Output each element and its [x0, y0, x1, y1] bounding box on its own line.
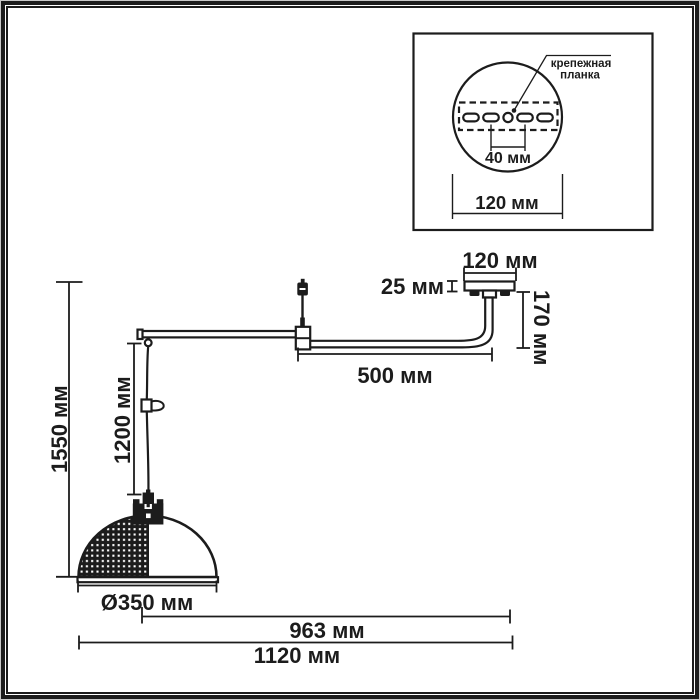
center-hole — [503, 113, 512, 122]
canopy-height-label: 25 мм — [381, 274, 444, 299]
detail-inset: крепежная планка 40 мм 120 мм — [414, 34, 653, 231]
mounting-plate-label-line1: крепежная — [551, 58, 612, 70]
arm-length-label: 500 мм — [357, 363, 432, 388]
shade-rim — [78, 577, 219, 582]
dimension-arm-length: 500 мм — [298, 348, 492, 389]
upper-arm-end-cap — [138, 330, 143, 339]
cord-connector — [143, 493, 154, 505]
dimension-stem-height: 170 мм — [517, 290, 555, 365]
hole-spacing-label: 40 мм — [485, 150, 531, 167]
dimension-suspension-length: 1200 мм — [110, 344, 142, 495]
dimension-canopy-height: 25 мм — [381, 274, 458, 299]
holder-notch-pin — [147, 504, 150, 507]
overall-height-label: 1550 мм — [47, 385, 72, 473]
dimension-shade-diameter: Ø350 мм — [78, 581, 217, 616]
reach-center-label: 963 мм — [289, 618, 364, 643]
suspension-cord-upper — [147, 346, 148, 399]
holder-ear-right — [157, 499, 164, 504]
ceiling-canopy — [465, 282, 515, 291]
holder-ear-left — [133, 499, 140, 504]
plate-width-label: 120 мм — [475, 192, 538, 213]
technical-drawing: крепежная планка 40 мм 120 мм — [0, 0, 700, 700]
lamp-dimension-diagram: крепежная планка 40 мм 120 мм — [0, 0, 700, 700]
cord-clip-loop — [151, 401, 163, 410]
dimension-canopy-width: 120 мм — [462, 248, 537, 281]
upper-arm — [141, 331, 296, 337]
stem-height-label: 170 мм — [529, 290, 554, 365]
slot-hole — [483, 114, 499, 122]
slot-hole — [537, 114, 553, 122]
canopy-screw-right — [500, 291, 510, 297]
mounting-plate-label-line2: планка — [560, 70, 600, 82]
dimension-overall-height: 1550 мм — [47, 282, 83, 577]
canopy-width-label: 120 мм — [462, 248, 537, 273]
holder-window — [146, 514, 151, 519]
plug-slit — [300, 288, 306, 290]
cord-clip — [142, 400, 152, 412]
cable-grommet — [300, 318, 305, 328]
dimension-reach-center: 963 мм — [142, 607, 510, 643]
shade-diameter-label: Ø350 мм — [101, 590, 193, 615]
canopy-screw-left — [470, 291, 480, 297]
lower-arm-and-stem — [309, 298, 493, 348]
overall-width-label: 1120 мм — [254, 643, 340, 668]
suspension-cord-lower — [147, 412, 149, 494]
slot-hole — [517, 114, 533, 122]
cord-attachment-ring — [145, 339, 152, 346]
lamp-structure — [78, 279, 515, 582]
suspension-length-label: 1200 мм — [110, 376, 135, 464]
slot-hole — [463, 114, 479, 122]
